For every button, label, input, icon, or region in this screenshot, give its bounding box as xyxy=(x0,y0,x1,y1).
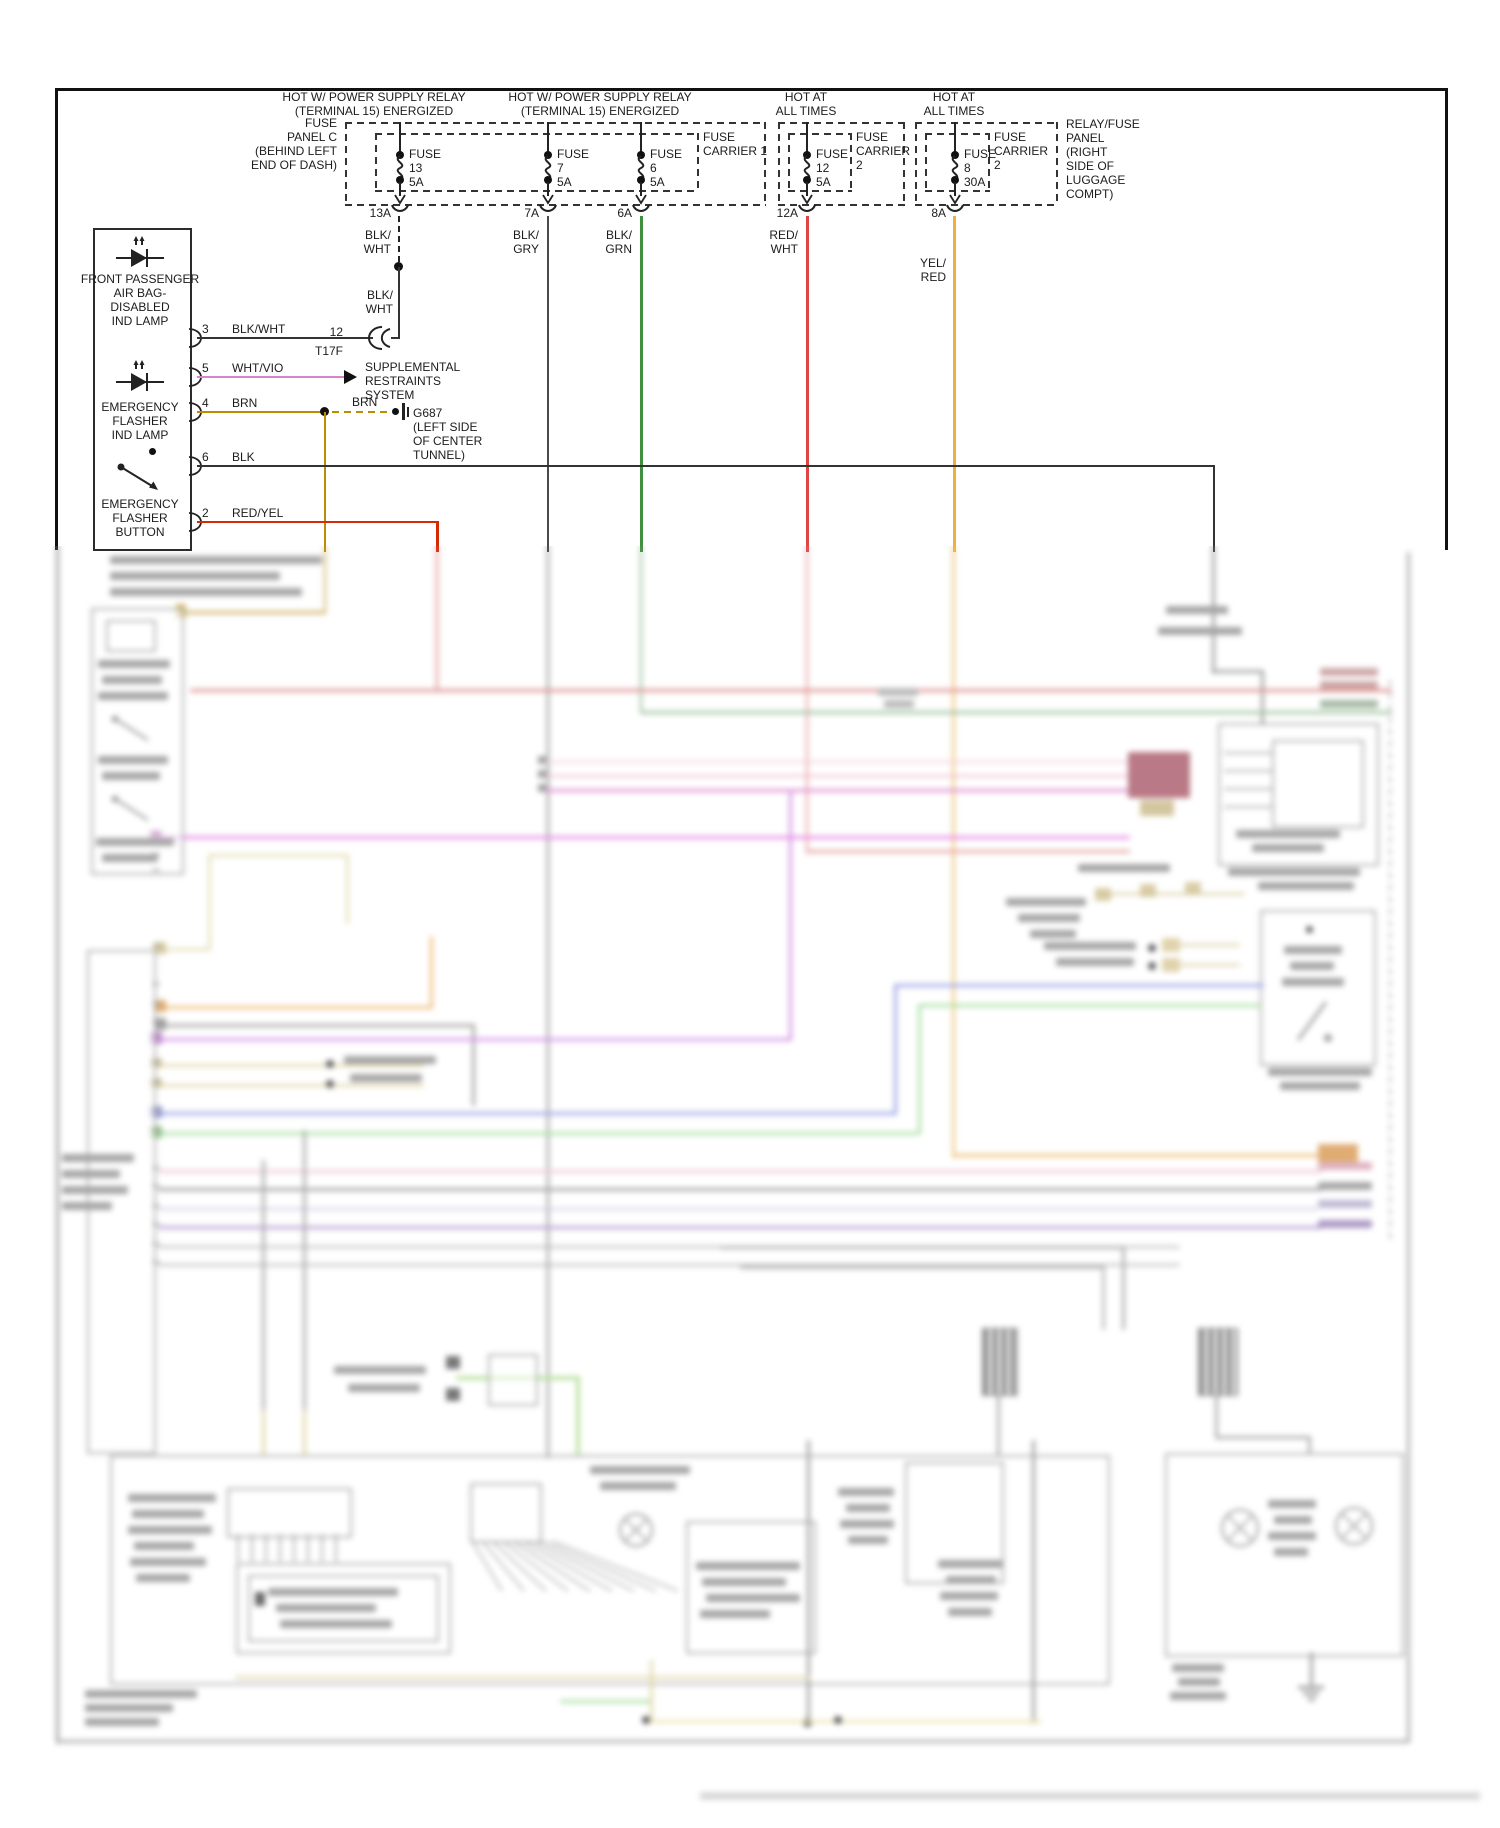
text-smudge xyxy=(1318,1220,1372,1228)
text-smudge xyxy=(268,1588,398,1596)
wire xyxy=(150,1078,162,1088)
button-label: FLASHER xyxy=(112,511,167,525)
ground-location: OF CENTER xyxy=(413,434,482,448)
frame-bottom xyxy=(56,1740,1410,1743)
led-lamp-icon xyxy=(116,236,164,268)
wire xyxy=(255,1592,265,1606)
text-smudge xyxy=(110,588,302,596)
wire xyxy=(158,836,1130,839)
blur-streak xyxy=(700,1792,1480,1800)
connector-socket-icon xyxy=(539,205,557,215)
wire xyxy=(1224,806,1272,808)
fuse-amps: 30A xyxy=(964,175,985,189)
lamp2-label: EMERGENCY xyxy=(101,400,178,414)
text-smudge xyxy=(1320,668,1378,676)
wire xyxy=(997,1394,1000,1456)
header-4-line-1: HOT AT xyxy=(933,90,975,104)
fuse-out-label: 7A xyxy=(524,206,539,220)
pin-stub xyxy=(152,1081,160,1083)
fuse-wire-color: BLK/ xyxy=(513,228,539,242)
fuse-lead xyxy=(640,122,642,153)
wire xyxy=(163,948,211,951)
wire-blk xyxy=(197,465,1215,467)
lamp1-label: AIR BAG- xyxy=(114,286,167,300)
wire xyxy=(190,689,1392,692)
text-smudge xyxy=(938,1560,1002,1568)
text-smudge xyxy=(134,1542,194,1550)
component-box xyxy=(1260,910,1376,1066)
component-box xyxy=(686,1521,816,1654)
fuse-lead xyxy=(547,182,549,196)
text-smudge xyxy=(1158,627,1242,635)
fuse-wire-color: WHT xyxy=(364,242,391,256)
wire xyxy=(560,1700,652,1703)
wire xyxy=(150,1032,162,1044)
wire xyxy=(150,830,162,842)
wire xyxy=(446,1356,460,1369)
carrier2a-label: FUSE xyxy=(856,130,888,144)
wire xyxy=(720,1246,1124,1249)
wire-brn-dashed xyxy=(332,411,390,414)
wire xyxy=(1224,788,1272,790)
fuse-wire-color: RED/ xyxy=(769,228,798,242)
pin-stub xyxy=(152,853,160,855)
lamp-icon xyxy=(1332,1504,1376,1548)
fuse-label: FUSE xyxy=(964,147,996,161)
text-smudge xyxy=(128,1526,212,1534)
wire xyxy=(158,1084,424,1087)
component-box xyxy=(110,1455,1110,1685)
wire xyxy=(154,1000,166,1012)
wire-pin3 xyxy=(391,337,400,339)
wire xyxy=(158,1264,1180,1266)
text-smudge xyxy=(62,1202,112,1210)
text-smudge xyxy=(1258,882,1354,890)
fuse-number: 13 xyxy=(409,161,422,175)
wire xyxy=(158,1170,1322,1173)
wire xyxy=(158,1038,792,1041)
component-box xyxy=(1218,723,1379,866)
fusebox-outer2 xyxy=(778,122,905,124)
wire-yel-red xyxy=(953,216,956,552)
pin-stub xyxy=(152,1185,160,1187)
fuse-label: FUSE xyxy=(650,147,682,161)
text-smudge xyxy=(98,756,168,764)
wire xyxy=(538,770,546,778)
wire-label-blk-wht: BLK/ xyxy=(367,288,393,302)
fuse-lead xyxy=(806,182,808,196)
lamp2-label: IND LAMP xyxy=(112,428,169,442)
wire xyxy=(1308,1698,1315,1701)
lamp1-label: FRONT PASSENGER xyxy=(81,272,199,286)
wire xyxy=(1298,1686,1324,1689)
text-smudge xyxy=(334,1366,426,1374)
pin-number: 6 xyxy=(202,450,209,464)
wire xyxy=(918,1004,921,1134)
text-smudge xyxy=(706,1594,800,1602)
fuse-panel-c-label: (BEHIND LEFT xyxy=(255,144,337,158)
wire xyxy=(1128,752,1190,798)
wire xyxy=(1180,944,1240,946)
wire xyxy=(640,544,643,714)
connector-socket-icon xyxy=(946,205,964,215)
wire xyxy=(472,1024,475,1106)
fusebox-outer1 xyxy=(345,122,766,124)
text-smudge xyxy=(62,1186,128,1194)
arrow-icon xyxy=(344,370,358,384)
text-smudge xyxy=(1170,1692,1226,1700)
text-smudge xyxy=(1236,830,1340,838)
wire xyxy=(1180,964,1240,966)
wire xyxy=(1162,938,1180,952)
text-smudge xyxy=(1178,1678,1220,1686)
relay-fuse-panel-label: (RIGHT xyxy=(1066,145,1107,159)
wire-red-wht xyxy=(806,216,809,552)
switch-icon xyxy=(1292,996,1336,1044)
wire xyxy=(545,789,1128,792)
wire xyxy=(158,1188,1322,1191)
wire xyxy=(1162,958,1180,972)
text-smudge xyxy=(1018,914,1080,922)
pin-stub xyxy=(152,1021,160,1023)
junction-dot xyxy=(1306,926,1313,933)
text-smudge xyxy=(98,660,170,668)
text-smudge xyxy=(1290,962,1334,970)
wire xyxy=(1318,1144,1358,1162)
arrow-down-icon xyxy=(394,195,406,204)
relay-fuse-panel-label: COMPT) xyxy=(1066,187,1113,201)
component-box xyxy=(227,1488,352,1538)
text-smudge xyxy=(846,1504,890,1512)
pin-stub xyxy=(251,1534,253,1562)
text-smudge xyxy=(1252,844,1324,852)
pin-stub xyxy=(265,1534,267,1562)
wire-blk-grn xyxy=(640,216,643,552)
wire xyxy=(154,942,166,954)
relay-fuse-panel-label: SIDE OF xyxy=(1066,159,1114,173)
frame-left xyxy=(56,544,59,1744)
fusebox-outer2 xyxy=(778,122,780,206)
wire xyxy=(545,761,1128,763)
fuse-carrier2b-box xyxy=(988,133,990,192)
wire xyxy=(208,856,211,950)
wire xyxy=(806,544,809,854)
wire xyxy=(1310,1652,1313,1686)
wire xyxy=(953,1154,1325,1157)
fuse-carrier2a-box xyxy=(788,133,852,135)
pin-stub xyxy=(152,1035,160,1037)
header-1-line-1: HOT W/ POWER SUPPLY RELAY xyxy=(282,90,465,104)
wire xyxy=(918,1004,1262,1007)
wire xyxy=(176,604,186,618)
fuse-out-label: 13A xyxy=(370,206,391,220)
text-smudge xyxy=(1280,1082,1360,1090)
connector-pin-number: 12 xyxy=(330,325,343,339)
text-smudge xyxy=(946,1576,996,1584)
wiring-diagram-page: HOT W/ POWER SUPPLY RELAY (TERMINAL 15) … xyxy=(0,0,1500,1828)
wire xyxy=(952,544,955,1158)
text-smudge xyxy=(948,1608,992,1616)
text-smudge xyxy=(1284,946,1342,954)
wire xyxy=(538,756,546,764)
text-smudge xyxy=(1268,1532,1316,1540)
wire xyxy=(894,984,897,1114)
text-smudge xyxy=(130,1558,206,1566)
wire xyxy=(1185,882,1201,895)
component-box xyxy=(248,1575,439,1642)
wire xyxy=(1215,1436,1311,1439)
wire xyxy=(158,1226,1322,1229)
fuse-carrier2a-box xyxy=(850,133,852,192)
wire xyxy=(1224,752,1272,754)
pin-fan xyxy=(462,1539,692,1593)
led-lamp-icon xyxy=(116,360,164,392)
pin-stub xyxy=(307,1534,309,1562)
lamp-icon xyxy=(616,1510,656,1550)
text-smudge xyxy=(348,1384,420,1392)
connector-socket-icon xyxy=(632,205,650,215)
wire-blk-wht xyxy=(398,267,400,338)
pin-stub xyxy=(152,945,160,947)
fuse-lead xyxy=(954,122,956,153)
wire xyxy=(1140,800,1174,816)
fuse-wire-color: RED xyxy=(921,270,946,284)
wire xyxy=(150,1106,162,1118)
text-smudge xyxy=(1282,978,1344,986)
wire xyxy=(150,1126,162,1138)
wire xyxy=(446,1388,460,1401)
ground-location: TUNNEL) xyxy=(413,448,465,462)
wire-pin3 xyxy=(197,337,373,339)
carrier2a-label: 2 xyxy=(856,158,863,172)
pin-wire-name: BLK/WHT xyxy=(232,322,285,336)
arrow-down-icon xyxy=(801,195,813,204)
switch-contact-dot xyxy=(149,448,156,455)
fuse-amps: 5A xyxy=(650,175,665,189)
pin-stub xyxy=(152,1261,160,1263)
fuse-out-label: 12A xyxy=(777,206,798,220)
wire-brn xyxy=(324,412,327,552)
text-smudge xyxy=(128,1494,216,1502)
wire xyxy=(1095,888,1111,901)
wire xyxy=(430,936,433,1008)
fuse-carrier2b-box xyxy=(925,133,990,135)
junction-dot xyxy=(1148,944,1156,952)
text-smudge xyxy=(62,1170,120,1178)
text-smudge xyxy=(590,1466,690,1474)
pin-stub xyxy=(152,833,160,835)
wire xyxy=(740,1266,1104,1269)
pin-stub xyxy=(279,1534,281,1562)
pin-number: 3 xyxy=(202,322,209,336)
wire xyxy=(158,1132,920,1135)
text-smudge xyxy=(280,1620,392,1628)
fuse-wire-color: BLK/ xyxy=(365,228,391,242)
fuse-wire-color: YEL/ xyxy=(920,256,946,270)
text-smudge xyxy=(1030,930,1076,938)
text-smudge xyxy=(1320,700,1378,708)
carrier1-label: CARRIER 1 xyxy=(703,144,767,158)
wire xyxy=(1122,1246,1125,1330)
fuse-label: FUSE xyxy=(816,147,848,161)
wire xyxy=(346,854,349,924)
carrier2b-label: FUSE xyxy=(994,130,1026,144)
text-smudge xyxy=(85,1690,197,1698)
wire-blk-wht xyxy=(398,216,400,266)
connector-name: T17F xyxy=(315,344,343,358)
wire xyxy=(158,1112,897,1115)
junction-dot xyxy=(803,1718,812,1727)
connector-socket-icon xyxy=(798,205,816,215)
carrier1-label: FUSE xyxy=(703,130,735,144)
wire xyxy=(208,854,348,857)
text-smudge xyxy=(1006,898,1086,906)
text-smudge xyxy=(1320,681,1378,689)
fuse-amps: 5A xyxy=(816,175,831,189)
fuse-lead xyxy=(640,182,642,196)
fuse-wire-color: GRN xyxy=(605,242,632,256)
junction-dot xyxy=(642,1716,650,1724)
text-smudge xyxy=(884,700,914,708)
connector-socket-icon xyxy=(391,205,409,215)
wire xyxy=(1212,544,1215,674)
text-smudge xyxy=(85,1718,159,1726)
pin-number: 5 xyxy=(202,361,209,375)
text-smudge xyxy=(1078,864,1170,872)
text-smudge xyxy=(102,676,162,684)
fuse-panel-c-label: END OF DASH) xyxy=(251,158,337,172)
srs-label: RESTRAINTS xyxy=(365,374,441,388)
wire xyxy=(235,1676,810,1679)
fuse-lead xyxy=(806,122,808,153)
pin-stub xyxy=(152,1243,160,1245)
text-smudge xyxy=(110,572,280,580)
frame-top xyxy=(55,88,1447,91)
text-smudge xyxy=(350,1074,422,1082)
text-smudge xyxy=(1056,958,1134,966)
text-smudge xyxy=(1274,1516,1312,1524)
text-smudge xyxy=(1166,606,1228,614)
wire xyxy=(576,1376,580,1456)
fuse-label: FUSE xyxy=(557,147,589,161)
component-box xyxy=(1272,740,1364,828)
ground-icon xyxy=(402,403,405,420)
wire-brn xyxy=(197,411,325,414)
fusebox-outer1 xyxy=(345,122,347,206)
component-box xyxy=(905,1462,1004,1584)
relay-fuse-panel-label: LUGGAGE xyxy=(1066,173,1125,187)
pin-wire-name: RED/YEL xyxy=(232,506,283,520)
text-smudge xyxy=(62,1154,134,1162)
header-3-line-1: HOT AT xyxy=(785,90,827,104)
wire xyxy=(1140,884,1156,897)
connector-bar xyxy=(982,1328,1018,1396)
wire xyxy=(154,1018,166,1030)
pin-wire-name: WHT/VIO xyxy=(232,361,283,375)
frame-right xyxy=(1407,552,1410,1743)
text-smudge xyxy=(85,1704,173,1712)
wire xyxy=(806,850,1130,853)
ground-name: G687 xyxy=(413,406,442,420)
lamp1-label: IND LAMP xyxy=(112,314,169,328)
text-smudge xyxy=(702,1578,786,1586)
text-smudge xyxy=(344,1056,436,1064)
wire xyxy=(456,1376,580,1380)
switch-icon xyxy=(110,792,154,826)
pin-stub xyxy=(152,1167,160,1169)
wire xyxy=(789,790,792,1040)
wire xyxy=(1102,1266,1105,1330)
fuse-carrier1-box xyxy=(375,133,699,135)
wire xyxy=(640,711,1392,714)
wire xyxy=(538,784,546,792)
text-smudge xyxy=(1044,942,1136,950)
text-smudge xyxy=(276,1604,376,1612)
pin-stub xyxy=(237,1534,239,1562)
fuse-out-label: 8A xyxy=(931,206,946,220)
text-smudge xyxy=(1318,1162,1372,1170)
text-smudge xyxy=(700,1610,770,1618)
button-label: EMERGENCY xyxy=(101,497,178,511)
wire xyxy=(807,1440,810,1722)
wire-red-yel xyxy=(436,521,439,552)
text-smudge xyxy=(878,688,918,696)
srs-label: SUPPLEMENTAL xyxy=(365,360,460,374)
fuse-lead xyxy=(399,182,401,196)
text-smudge xyxy=(1268,1068,1372,1076)
relay-fuse-panel-label: PANEL xyxy=(1066,131,1104,145)
pin-stub xyxy=(152,1061,160,1063)
component-box xyxy=(1165,1453,1404,1657)
pin-stub xyxy=(152,869,160,871)
fuse-amps: 5A xyxy=(409,175,424,189)
pin-stub xyxy=(152,983,160,985)
wire xyxy=(183,611,326,614)
wire xyxy=(436,544,439,692)
text-smudge xyxy=(696,1562,800,1570)
text-smudge xyxy=(1274,1548,1308,1556)
wire xyxy=(1303,1692,1319,1695)
fuse-lead xyxy=(547,122,549,153)
pin-stub xyxy=(152,1003,160,1005)
text-smudge xyxy=(600,1482,676,1490)
fusebox-outer3 xyxy=(915,122,1058,124)
ground-icon xyxy=(407,407,409,417)
pin-number: 2 xyxy=(202,506,209,520)
junction-dot xyxy=(1148,962,1156,970)
arrow-down-icon xyxy=(635,195,647,204)
wire xyxy=(1032,1440,1035,1724)
fuse-panel-c-label: PANEL C xyxy=(287,130,337,144)
wire xyxy=(894,984,1264,987)
fuse-amps: 5A xyxy=(557,175,572,189)
text-smudge xyxy=(1268,1500,1316,1508)
wire xyxy=(262,1160,265,1456)
pin-stub xyxy=(321,1534,323,1562)
fuse-lead xyxy=(954,182,956,196)
ground-dot xyxy=(392,408,399,415)
junction-dot xyxy=(326,1060,334,1068)
text-smudge xyxy=(102,772,160,780)
component-box xyxy=(91,608,184,875)
fuse-lead xyxy=(399,122,401,153)
wire xyxy=(303,1130,306,1456)
text-smudge xyxy=(1318,1200,1372,1208)
fuse-label: FUSE xyxy=(409,147,441,161)
junction-dot xyxy=(326,1080,334,1088)
frame-left xyxy=(55,88,58,550)
wire xyxy=(1261,670,1264,726)
